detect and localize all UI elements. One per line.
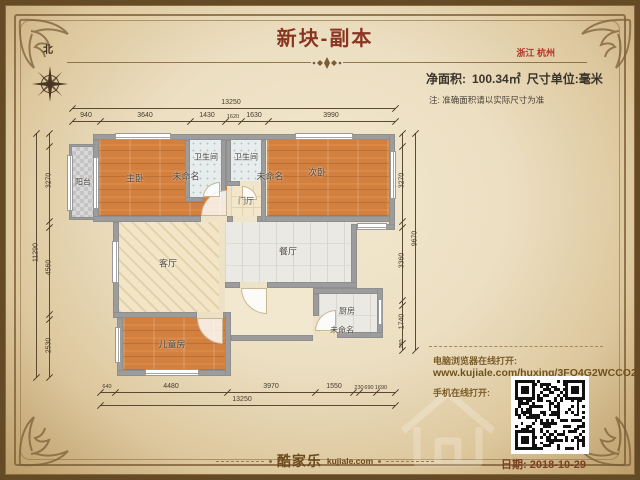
window	[145, 369, 199, 376]
dim-bottom-total: 13250	[224, 396, 260, 403]
dim-line-top-segments	[72, 121, 395, 122]
north-label: 北	[43, 41, 53, 56]
wall	[227, 216, 233, 222]
wall	[225, 312, 231, 376]
window	[115, 133, 171, 140]
room-label-foyer: 门厅	[238, 196, 254, 207]
dim-left-3: 2530	[46, 326, 53, 366]
dim-top-5: 1630	[236, 112, 272, 119]
room-label-second-bedroom: 次卧	[308, 166, 326, 179]
window	[357, 223, 387, 230]
dim-top-1: 940	[68, 112, 104, 119]
room-label-unnamed-3: 未命名	[330, 325, 354, 336]
wall	[113, 312, 197, 318]
qr-code	[511, 376, 589, 454]
dim-bottom-1: 640	[98, 384, 116, 390]
room-second-bedroom	[267, 140, 389, 216]
dim-right-4: 180	[399, 330, 405, 358]
header-divider-left	[67, 62, 311, 63]
wall	[69, 144, 95, 147]
room-label-children: 儿童房	[158, 338, 185, 351]
area-value: 100.34㎡	[472, 72, 521, 86]
date-label: 日期: 2018-10-29	[501, 456, 586, 472]
dim-right-2: 3360	[399, 241, 406, 281]
balcony-slider-door	[93, 157, 99, 209]
wall	[351, 224, 357, 288]
dim-top-3: 1430	[189, 112, 225, 119]
unit-label: 尺寸单位:毫米	[527, 72, 603, 86]
dim-left-1: 3270	[46, 161, 53, 201]
dim-bottom-4: 1550	[316, 383, 352, 390]
brand-domain: kujiale.com	[327, 456, 373, 466]
wall	[231, 335, 313, 341]
wall	[313, 288, 383, 294]
divider-ornament-icon	[311, 56, 343, 70]
room-label-unnamed-1: 未命名	[172, 170, 199, 183]
dim-bottom-2: 4480	[153, 383, 189, 390]
compass-rose-icon	[31, 65, 69, 103]
area-note: 注: 准确面积请以实际尺寸为准	[429, 94, 544, 106]
room-corridor	[225, 288, 313, 335]
window	[378, 299, 383, 325]
wall	[313, 294, 319, 316]
brand-dot-right	[378, 460, 381, 463]
header-divider-right	[343, 62, 587, 63]
wall	[226, 181, 240, 186]
window	[112, 241, 119, 283]
mobile-open-label: 手机在线打开:	[433, 386, 490, 399]
window	[295, 133, 353, 140]
wall	[185, 197, 203, 202]
window	[67, 155, 73, 211]
area-label: 净面积:	[426, 72, 466, 86]
dim-line-bottom-total	[100, 405, 395, 406]
wall	[257, 216, 395, 222]
dim-top-2: 3640	[127, 112, 163, 119]
wall	[226, 140, 231, 186]
dim-bottom-7: 1690	[372, 385, 390, 391]
share-divider	[429, 346, 603, 347]
dim-top-6: 3990	[313, 112, 349, 119]
wall	[69, 217, 95, 220]
window	[390, 151, 396, 199]
dim-left-2: 4560	[46, 248, 53, 288]
room-label-bathroom-2: 卫生间	[234, 152, 258, 163]
area-info: 净面积:100.34㎡尺寸单位:毫米	[426, 70, 609, 87]
room-label-balcony: 阳台	[75, 177, 91, 188]
brand-name: 酷家乐	[277, 451, 322, 471]
dim-line-top-total	[72, 108, 395, 109]
location-text: 浙江 杭州	[470, 46, 555, 59]
room-label-master: 主卧	[126, 172, 144, 185]
dim-left-total: 11290	[33, 233, 40, 273]
brand-line-right	[386, 461, 434, 462]
dim-right-total: 9670	[412, 219, 419, 259]
window	[115, 327, 121, 363]
dim-bottom-3: 3970	[253, 383, 289, 390]
room-label-bathroom-1: 卫生间	[194, 152, 218, 163]
dim-top-total: 13250	[213, 99, 249, 106]
room-label-unnamed-2: 未命名	[256, 170, 283, 183]
dim-right-1: 3270	[399, 161, 406, 201]
room-label-kitchen: 厨房	[339, 306, 355, 317]
room-label-living: 客厅	[159, 257, 177, 270]
floorplan-poster: 新块-副本 浙江 杭州 净面积:100.34㎡尺寸单位:毫米 注: 准确面积请以…	[0, 0, 640, 480]
brand-dot-left	[269, 460, 272, 463]
wall	[93, 216, 201, 222]
wall	[225, 282, 240, 288]
brand-line-left	[216, 461, 264, 462]
room-label-dining: 餐厅	[279, 245, 297, 258]
desktop-open-label: 电脑浏览器在线打开:	[433, 354, 517, 367]
